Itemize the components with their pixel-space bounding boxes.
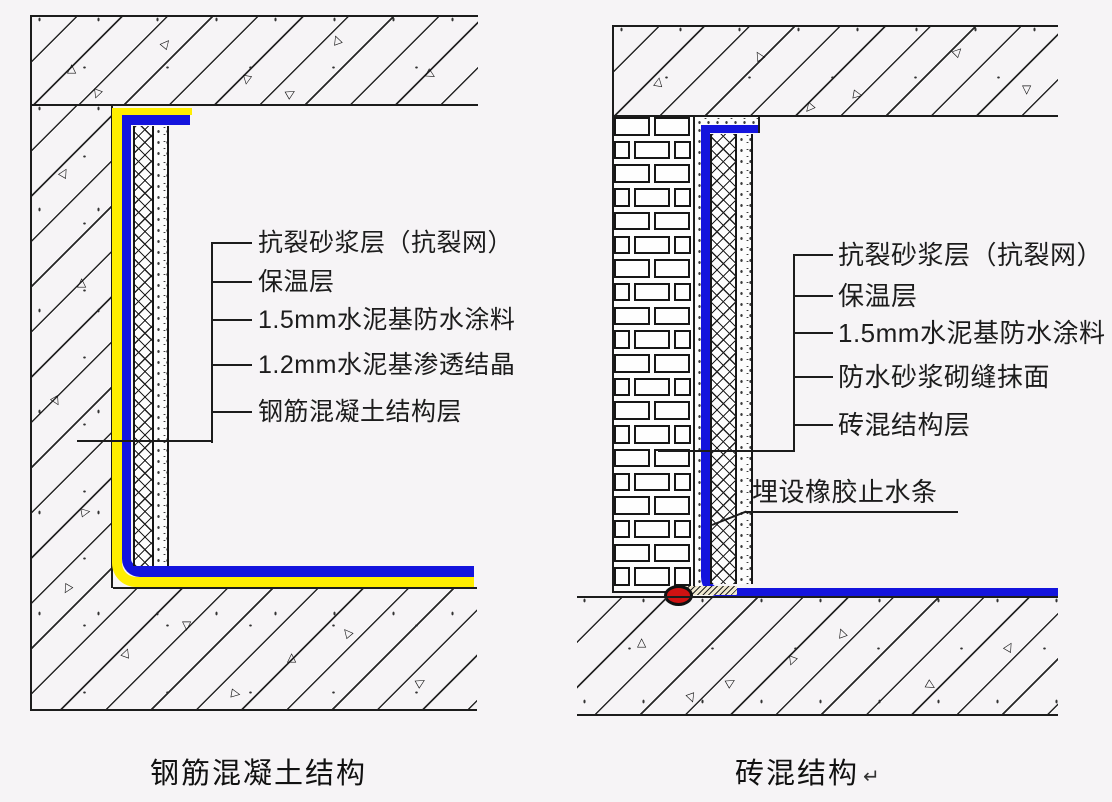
- brick: [614, 354, 650, 373]
- aggregate-triangle-mark: △: [835, 625, 848, 639]
- brick: [614, 449, 650, 468]
- aggregate-triangle-mark: △: [637, 636, 646, 648]
- aggregate-triangle-mark: △: [287, 651, 296, 663]
- aggregate-triangle-mark: △: [685, 692, 698, 706]
- leader-tick: [211, 364, 252, 366]
- brick: [654, 117, 690, 136]
- aggregate-triangle-mark: △: [182, 621, 191, 633]
- anti-crack-mortar-column: [737, 134, 753, 584]
- brick: [614, 283, 630, 302]
- leader-into-wall: [658, 450, 795, 452]
- aggregate-triangle-mark: △: [159, 35, 174, 50]
- aggregate-triangle-mark: △: [77, 276, 86, 288]
- aggregate-triangle-mark: △: [330, 32, 343, 46]
- brick: [674, 473, 691, 492]
- aggregate-triangle-mark: △: [852, 89, 865, 100]
- leader-tick: [211, 319, 252, 321]
- aggregate-triangle-mark: △: [951, 43, 966, 58]
- aggregate-triangle-mark: △: [752, 47, 766, 62]
- right-floor-slab: △△△△△△△: [577, 596, 1058, 716]
- brick: [674, 520, 691, 539]
- leader-tick: [793, 424, 833, 426]
- brick: [674, 283, 691, 302]
- aggregate-triangle-mark: △: [60, 582, 74, 597]
- layer-label-anti-crack: 抗裂砂浆层（抗裂网）: [838, 239, 1103, 271]
- brick: [614, 520, 630, 539]
- leader-bus-vertical: [793, 254, 795, 451]
- brick: [614, 212, 650, 231]
- brick: [634, 283, 670, 302]
- layer-label-insulation: 保温层: [258, 266, 335, 298]
- brick: [654, 212, 690, 231]
- brick: [654, 259, 690, 278]
- waterstop-callout-text: 埋设橡胶止水条: [752, 476, 938, 508]
- construction-detail-sheet: { "page": { "background": "#f6f4f6" }, "…: [0, 0, 1112, 802]
- brick: [674, 378, 691, 397]
- left-detail-drawing: △△△△△△△ △△△△△△△△△△△ 抗裂砂浆层（抗裂网） 保温层 1.5mm…: [0, 0, 556, 802]
- aggregate-triangle-mark: △: [724, 675, 739, 689]
- layer-label-insulation: 保温层: [838, 280, 918, 312]
- aggregate-triangle-mark: △: [785, 655, 798, 669]
- brick: [674, 188, 691, 207]
- brick: [614, 544, 650, 563]
- right-detail-caption: 砖混结构↵: [735, 750, 882, 792]
- brick: [614, 141, 630, 160]
- anti-crack-mortar-column: [154, 126, 169, 566]
- right-ceiling-slab: △△△△△△: [612, 25, 1058, 117]
- aggregate-triangle-mark: △: [414, 675, 429, 689]
- layer-label-structure: 钢筋混凝土结构层: [258, 396, 462, 428]
- leader-into-wall: [77, 440, 213, 442]
- aggregate-triangle-mark: △: [924, 679, 939, 693]
- aggregate-triangle-mark: △: [1003, 638, 1017, 653]
- leader-tick: [793, 332, 833, 334]
- brick: [614, 188, 630, 207]
- brick: [614, 401, 650, 420]
- aggregate-triangle-mark: △: [339, 624, 354, 639]
- layer-label-anti-crack: 抗裂砂浆层（抗裂网）: [258, 227, 513, 259]
- aggregate-triangle-mark: △: [67, 62, 76, 74]
- brick: [674, 425, 691, 444]
- brick: [614, 330, 630, 349]
- aggregate-triangle-mark: △: [58, 164, 72, 179]
- brick: [674, 236, 691, 255]
- aggregate-triangle-mark: △: [241, 74, 252, 87]
- layer-label-structure: 砖混结构层: [838, 409, 971, 441]
- left-floor-top-line: [113, 587, 477, 589]
- brick: [614, 236, 630, 255]
- aggregate-triangle-mark: △: [424, 68, 439, 82]
- brick: [614, 378, 630, 397]
- brick: [634, 330, 670, 349]
- layer-label-waterproof-coating: 1.5mm水泥基防水涂料: [838, 317, 1105, 349]
- aggregate-triangle-mark: △: [1022, 85, 1031, 97]
- leader-tick: [793, 376, 833, 378]
- yellow-coating-top-cap: [112, 108, 192, 115]
- brick: [614, 425, 630, 444]
- brick: [614, 117, 650, 136]
- layer-label-crystalline: 1.2mm水泥基渗透结晶: [258, 349, 515, 381]
- aggregate-triangle-mark: △: [120, 645, 133, 659]
- waterproof-blue-top-cap: [701, 125, 758, 133]
- brick: [634, 188, 670, 207]
- brick: [634, 425, 670, 444]
- aggregate-triangle-mark: △: [801, 101, 816, 116]
- layer-label-waterproof-coating: 1.5mm水泥基防水涂料: [258, 304, 515, 336]
- brick: [654, 307, 690, 326]
- waterstop-callout-underline: [745, 511, 958, 513]
- left-ceiling-slab: △△△△△△△: [30, 15, 478, 106]
- right-caption-text: 砖混结构: [735, 758, 859, 790]
- brick: [654, 401, 690, 420]
- layer-label-mortar-joint: 防水砂浆砌缝抹面: [838, 361, 1050, 393]
- brick: [614, 473, 630, 492]
- leader-tick: [211, 411, 252, 413]
- brick: [614, 496, 650, 515]
- leveling-mortar-top-strip: [695, 117, 758, 125]
- brick: [654, 544, 690, 563]
- brick: [674, 330, 691, 349]
- leader-tick: [793, 254, 833, 256]
- return-mark: ↵: [863, 766, 882, 788]
- brick: [634, 567, 670, 586]
- waterproof-blue-top-cap: [122, 115, 190, 125]
- brick: [614, 307, 650, 326]
- aggregate-triangle-mark: △: [284, 86, 299, 100]
- aggregate-triangle-mark: △: [50, 394, 64, 409]
- brick: [614, 164, 650, 183]
- brick: [634, 473, 670, 492]
- brick: [634, 378, 670, 397]
- insulation-layer-column: [133, 126, 154, 566]
- brick: [614, 567, 630, 586]
- aggregate-triangle-mark: △: [653, 74, 664, 87]
- brick: [614, 259, 650, 278]
- brick: [654, 164, 690, 183]
- leader-tick: [211, 281, 252, 283]
- aggregate-triangle-mark: △: [90, 88, 103, 102]
- brick: [654, 354, 690, 373]
- leader-tick: [211, 242, 252, 244]
- aggregate-triangle-mark: △: [230, 688, 243, 699]
- leader-tick: [793, 295, 833, 297]
- waterproof-blue-line: [122, 115, 474, 577]
- brick: [634, 520, 670, 539]
- right-detail-drawing: △△△△△△ △△△△△△△ 抗裂砂浆层（抗裂网） 保温层 1.5mm水泥基防水…: [556, 0, 1112, 802]
- brick: [634, 236, 670, 255]
- aggregate-triangle-mark: △: [80, 506, 93, 517]
- brick: [634, 141, 670, 160]
- left-detail-caption: 钢筋混凝土结构: [150, 750, 367, 792]
- brick-wall: [612, 117, 695, 593]
- brick: [674, 141, 691, 160]
- brick: [654, 496, 690, 515]
- brick: [674, 567, 691, 586]
